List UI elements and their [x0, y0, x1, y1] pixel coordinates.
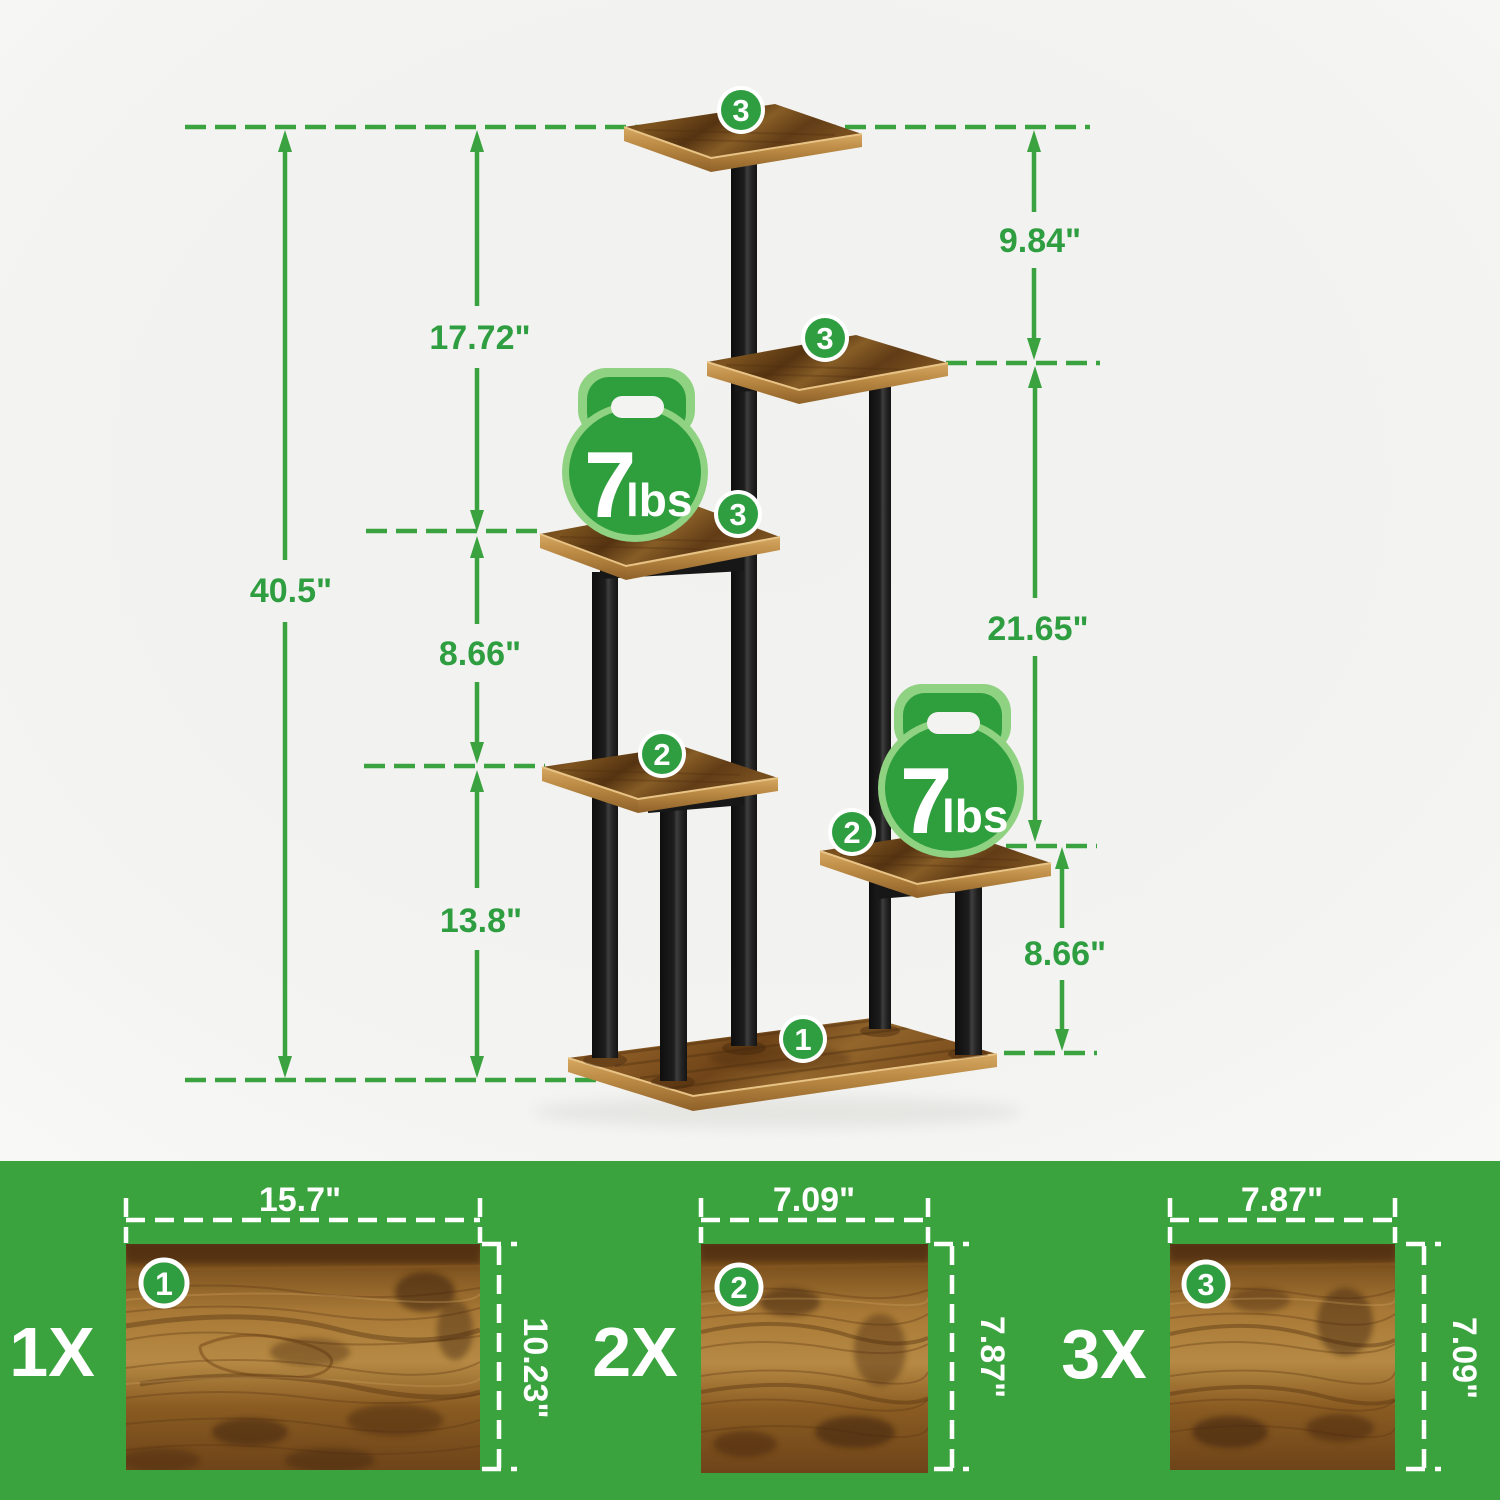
svg-text:13.8": 13.8" [440, 902, 522, 940]
svg-text:3: 3 [816, 321, 833, 356]
svg-text:7.09": 7.09" [773, 1181, 855, 1219]
svg-text:8.66": 8.66" [1024, 935, 1106, 973]
svg-text:10.23": 10.23" [516, 1317, 554, 1418]
svg-text:7.87": 7.87" [1241, 1181, 1323, 1219]
svg-text:1: 1 [155, 1266, 173, 1302]
svg-text:3X: 3X [1061, 1315, 1147, 1393]
svg-text:17.72": 17.72" [429, 319, 530, 357]
svg-text:3: 3 [732, 93, 749, 128]
svg-text:2X: 2X [592, 1313, 678, 1391]
svg-text:2: 2 [843, 815, 860, 850]
svg-text:3: 3 [729, 497, 746, 532]
svg-text:7.87": 7.87" [973, 1316, 1011, 1398]
svg-text:2: 2 [730, 1270, 747, 1305]
svg-text:21.65": 21.65" [987, 610, 1088, 648]
svg-text:9.84": 9.84" [999, 222, 1081, 260]
svg-text:3: 3 [1197, 1267, 1214, 1302]
svg-text:15.7": 15.7" [259, 1181, 341, 1219]
svg-text:lbs: lbs [626, 474, 692, 526]
svg-text:40.5": 40.5" [250, 572, 332, 610]
svg-text:7.09": 7.09" [1445, 1317, 1483, 1399]
svg-text:8.66": 8.66" [439, 635, 521, 673]
svg-text:2: 2 [653, 737, 670, 772]
svg-text:1: 1 [794, 1022, 811, 1057]
svg-text:1X: 1X [9, 1313, 95, 1391]
